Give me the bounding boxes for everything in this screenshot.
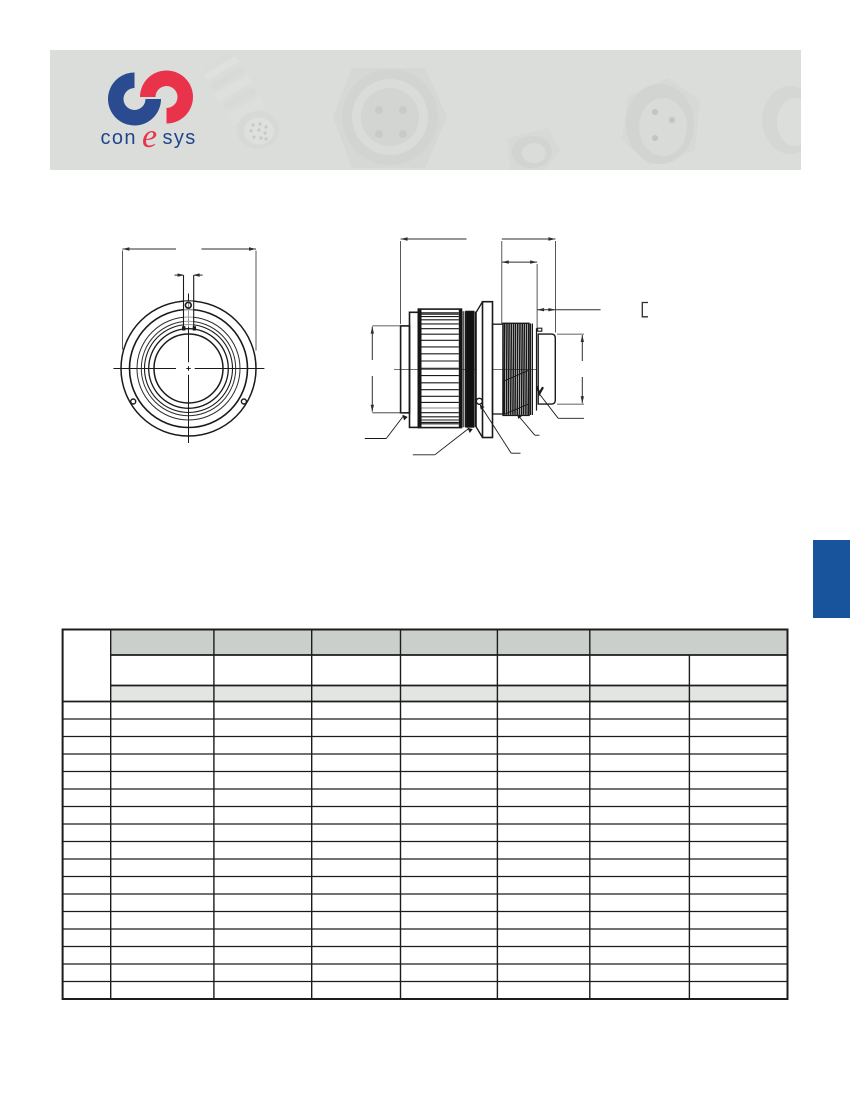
svg-text:con: con — [101, 127, 137, 149]
svg-text:e: e — [142, 118, 157, 155]
svg-text:sys: sys — [163, 127, 197, 149]
